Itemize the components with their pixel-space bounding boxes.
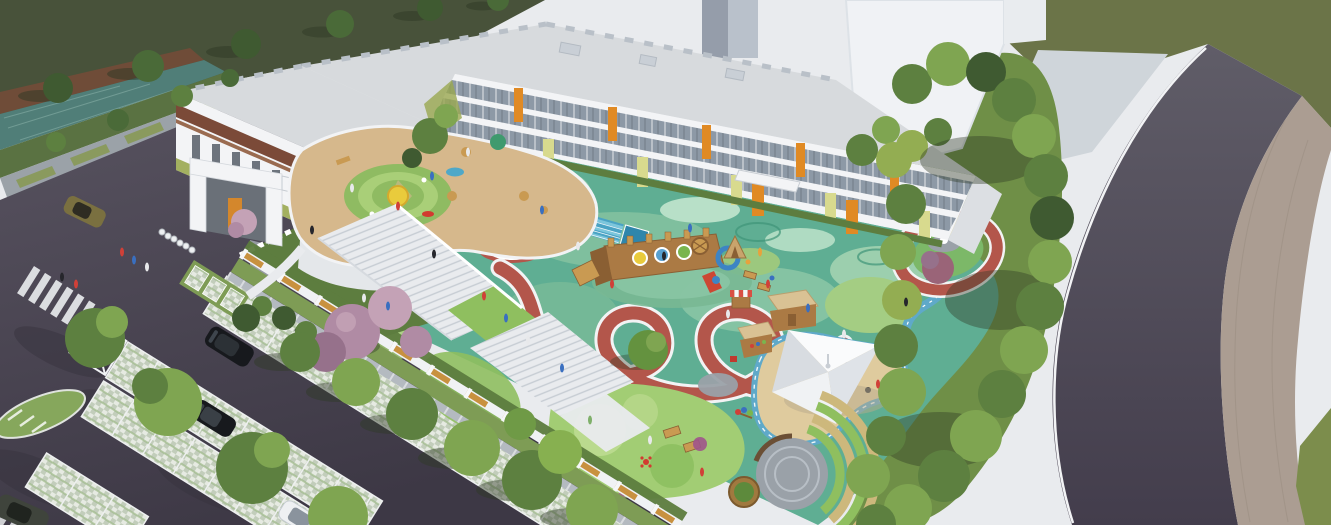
white-annex — [1004, 0, 1046, 44]
portal-right-pier — [266, 187, 282, 246]
timber-cabin — [768, 290, 818, 332]
architectural-render — [0, 0, 1331, 525]
awning-hut — [730, 290, 752, 308]
red-kiosk — [730, 356, 737, 362]
render-viewport: Kindergarten campus aerial architectural… — [0, 0, 1331, 525]
splash-pool — [446, 168, 464, 177]
parasol — [490, 134, 506, 150]
grey-highrise-right-face — [728, 0, 758, 58]
track-junction-paving — [698, 373, 738, 397]
